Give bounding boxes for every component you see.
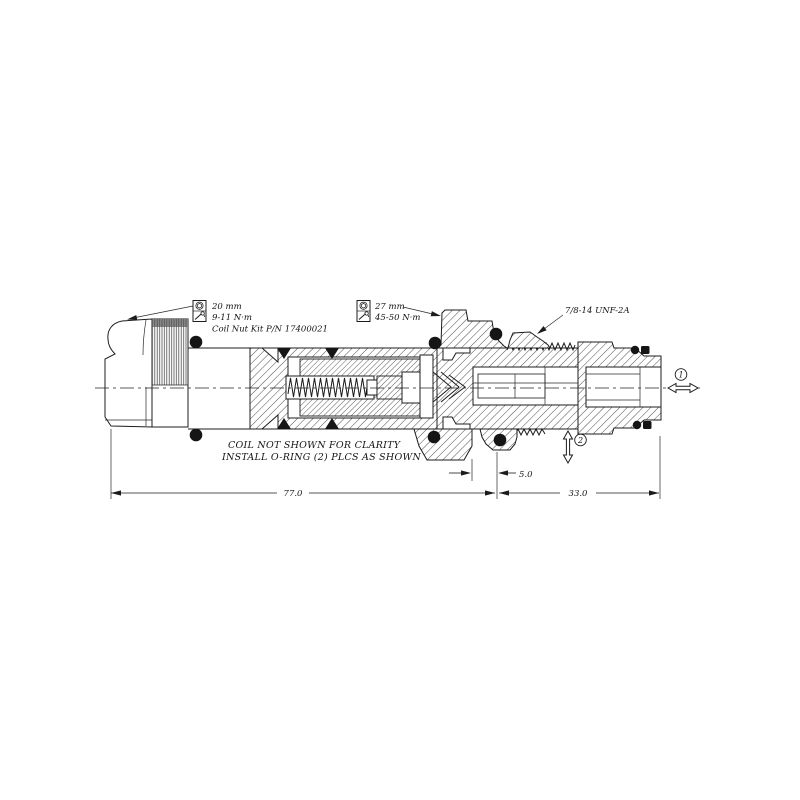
thread-spec-label: 7/8-14 UNF-2A [565,306,630,316]
port1-number: 1 [678,371,683,380]
spring-seat [367,380,377,395]
port2-flow-arrow [564,431,573,463]
thread-band-top [508,332,550,348]
callout-coil-nut-box [193,301,206,322]
dim-seat-offset: 5.0 [519,470,533,480]
body-wrench-size: 27 mm [374,302,405,312]
note-line2: INSTALL O-RING (2) PLCS AS SHOWN [221,452,422,463]
push-pin [420,355,433,418]
dim-overall-length: 77.0 [284,489,304,499]
dim-thread-end-length: 33.0 [569,489,589,499]
port1-flow-arrow [668,384,698,393]
note-line1: COIL NOT SHOWN FOR CLARITY [228,440,402,451]
pilot-bore [473,367,583,405]
coil-nut-wrench-size: 20 mm [211,302,242,312]
coil-nut [105,319,152,427]
plunger-gap [402,372,420,403]
port1-balloon: 1 [675,369,687,381]
body-torque: 45-50 N·m [374,313,420,323]
coil-nut-torque: 9-11 N·m [212,313,252,323]
callout-valve-body-box [357,301,370,322]
drawing-page: 77.0 33.0 5.0 [0,0,800,800]
hex-boss-bottom [414,429,472,460]
port2-balloon: 2 [575,434,587,446]
knurl-band [152,319,188,427]
port2-number: 2 [577,436,583,445]
nose-bore [586,367,661,407]
plunger [377,376,402,399]
valve-section-drawing: 77.0 33.0 5.0 [0,0,800,800]
coil-nut-kit-note: Coil Nut Kit P/N 17400021 [212,325,328,335]
